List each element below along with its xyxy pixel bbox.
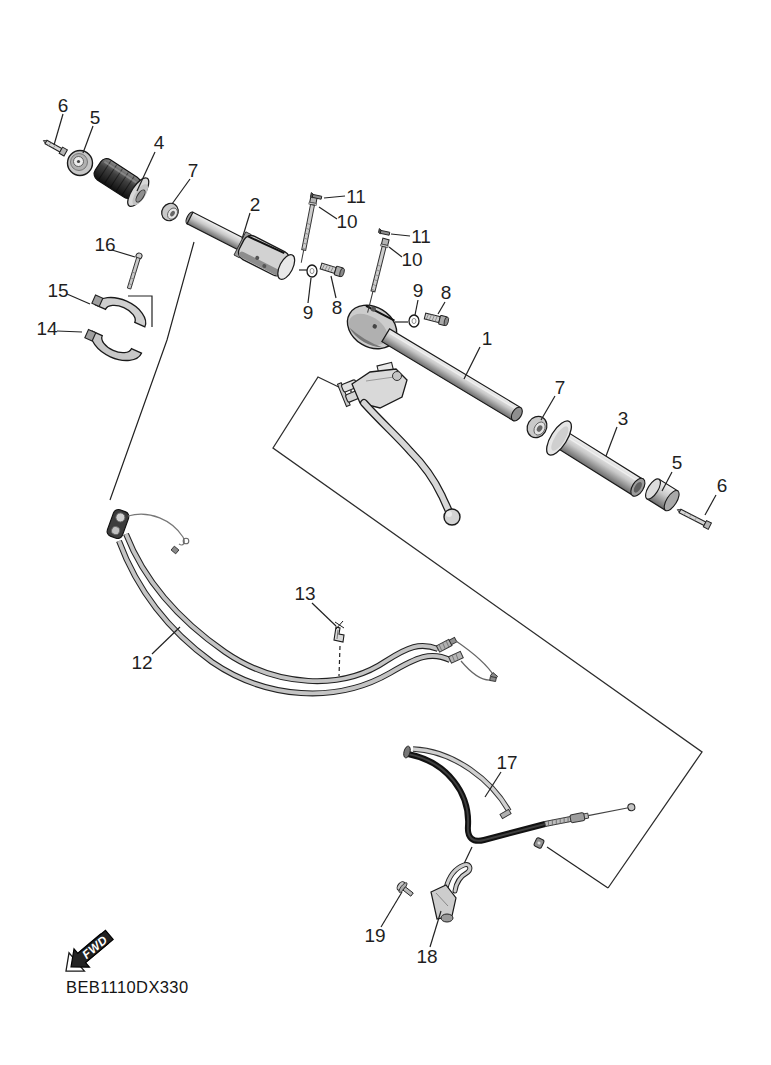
callout-9-a: 9	[303, 302, 314, 323]
callout-16: 16	[94, 234, 115, 255]
part-19-bolt	[395, 879, 416, 899]
part-4-grip	[89, 152, 154, 210]
part-6-bolt-left	[42, 137, 68, 155]
callout-10-a: 10	[336, 211, 357, 232]
part-9-washer-1	[307, 265, 317, 277]
callout-13: 13	[294, 583, 315, 604]
part-13-clip	[334, 621, 344, 642]
part-5-cap-left	[68, 151, 93, 176]
callout-3: 3	[618, 408, 629, 429]
callout-15: 15	[47, 280, 68, 301]
part-17-clutch-cable	[403, 745, 636, 848]
callout-17: 17	[496, 752, 517, 773]
callout-1: 1	[482, 328, 493, 349]
part-16-bolt	[126, 252, 143, 289]
callout-6-left: 6	[58, 95, 69, 116]
callout-10-b: 10	[401, 249, 422, 270]
callout-2: 2	[250, 194, 261, 215]
callout-11-a: 11	[346, 186, 366, 207]
parts-diagram-canvas: 6 5 4 7 2 11 10 11 10 9 8 9 8 1 7 3 5 6 …	[0, 0, 771, 1065]
part-6-bolt-right	[676, 507, 712, 530]
part-15-holder-upper	[92, 289, 151, 327]
callout-6-right: 6	[717, 475, 728, 496]
part-7-collar-right	[523, 413, 551, 442]
callout-4: 4	[154, 132, 165, 153]
part-3-throttle-tube	[542, 417, 653, 507]
callout-7-right: 7	[555, 377, 566, 398]
callout-11-b: 11	[411, 226, 431, 247]
clutch-lever-assembly	[337, 362, 460, 525]
part-9-washer-2	[409, 315, 419, 327]
part-10-bolt-2	[364, 238, 390, 314]
part-10-bolt-1	[297, 196, 317, 263]
part-2-handlebar-left	[181, 205, 298, 282]
callout-5-left: 5	[90, 107, 101, 128]
part-8-bolt-1	[320, 262, 346, 278]
part-code-label: BEB1110DX330	[66, 978, 189, 996]
part-14-holder-lower	[82, 330, 141, 368]
fwd-direction-marker: FWD	[58, 926, 117, 981]
part-7-collar-left	[158, 200, 181, 224]
callout-19: 19	[364, 925, 385, 946]
callout-7-left: 7	[188, 160, 199, 181]
callout-18: 18	[416, 946, 437, 967]
callout-8-b: 8	[441, 282, 452, 303]
callout-9-b: 9	[413, 280, 424, 301]
callout-8-a: 8	[332, 297, 343, 318]
parts-diagram-page: 6 5 4 7 2 11 10 11 10 9 8 9 8 1 7 3 5 6 …	[0, 0, 771, 1065]
part-18-bracket	[431, 865, 470, 922]
part-11-screw-2	[378, 229, 390, 236]
routing-lines	[110, 242, 472, 868]
callout-12: 12	[131, 652, 152, 673]
callout-14: 14	[36, 318, 58, 339]
part-8-bolt-2	[424, 312, 449, 327]
part-5-cap-right	[643, 477, 682, 513]
callout-5-right: 5	[672, 452, 683, 473]
callout-labels: 6 5 4 7 2 11 10 11 10 9 8 9 8 1 7 3 5 6 …	[36, 95, 727, 967]
